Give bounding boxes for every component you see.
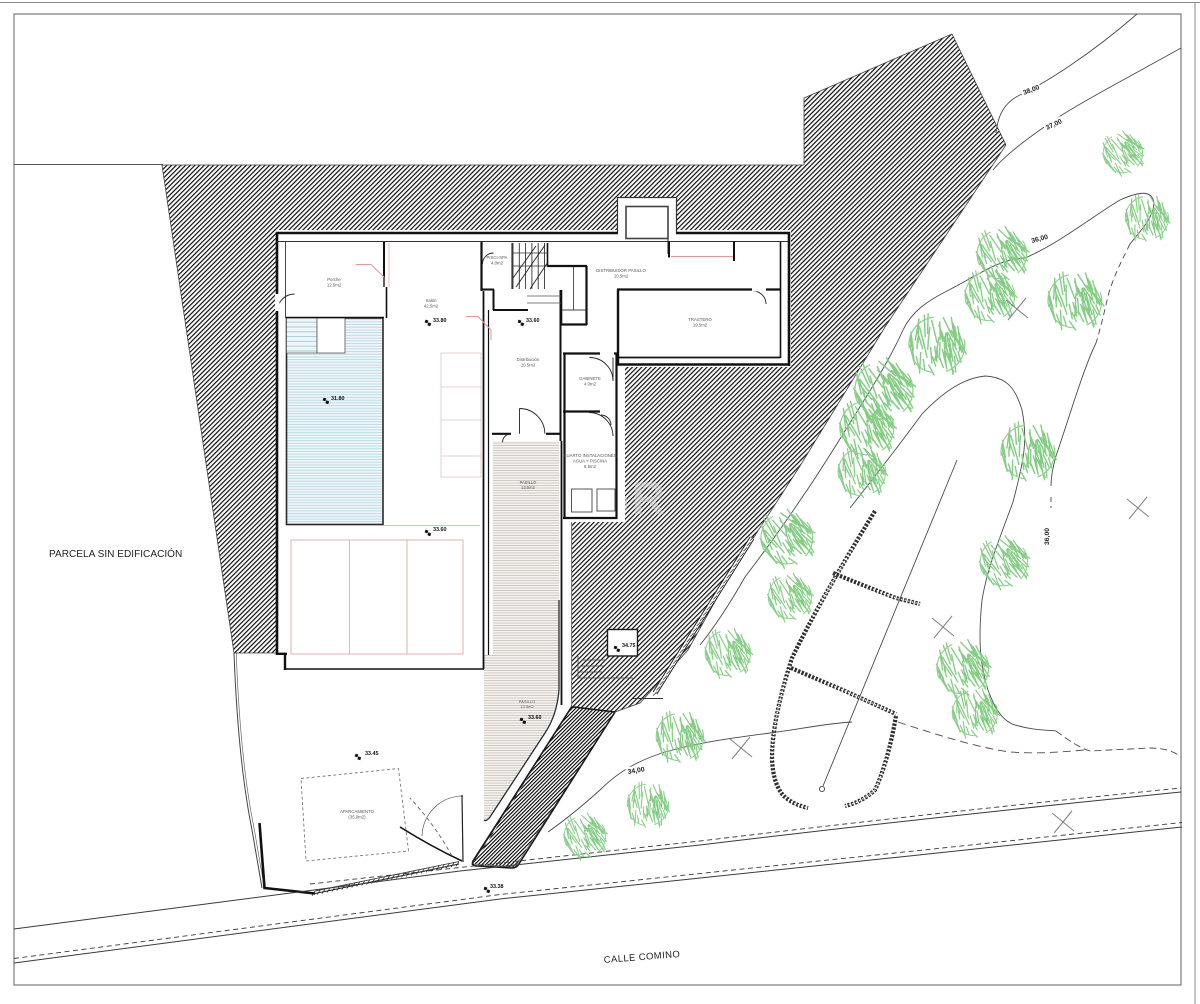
svg-text:33.60: 33.60 [433, 527, 447, 533]
svg-text:Distribución: Distribución [517, 357, 540, 362]
svg-text:33.60: 33.60 [526, 318, 540, 324]
svg-text:4.0m2: 4.0m2 [584, 381, 597, 386]
svg-text:13.5m2: 13.5m2 [521, 485, 535, 490]
svg-text:33.45: 33.45 [365, 751, 379, 757]
svg-text:CUARTO INSTALACIONES: CUARTO INSTALACIONES [563, 453, 616, 458]
svg-text:33.60: 33.60 [528, 715, 542, 721]
svg-text:PARCELA SIN EDIFICACIÓN: PARCELA SIN EDIFICACIÓN [49, 547, 182, 560]
svg-text:19.5m2: 19.5m2 [693, 322, 708, 327]
svg-text:Porche: Porche [327, 277, 341, 282]
svg-text:8.5m2: 8.5m2 [584, 464, 597, 469]
svg-text:10.5m2: 10.5m2 [521, 362, 536, 367]
svg-text:34.75: 34.75 [622, 643, 636, 649]
svg-text:4.0m2: 4.0m2 [491, 260, 504, 265]
svg-text:PISCI-SPA: PISCI-SPA [487, 255, 508, 260]
svg-text:(35.0m2): (35.0m2) [348, 814, 366, 819]
svg-text:42.5m2: 42.5m2 [424, 303, 439, 308]
svg-text:Salón: Salón [426, 298, 438, 303]
svg-text:APARCAMIENTO: APARCAMIENTO [340, 809, 375, 814]
svg-text:GABINETE: GABINETE [579, 376, 601, 381]
svg-text:36,00: 36,00 [1044, 528, 1051, 545]
svg-text:33.38: 33.38 [490, 884, 504, 890]
svg-text:DISTRIBUIDOR PASILLO: DISTRIBUIDOR PASILLO [596, 268, 646, 273]
svg-text:33.80: 33.80 [433, 318, 447, 324]
svg-text:31.80: 31.80 [331, 396, 345, 402]
svg-text:AGUA Y PISCINA: AGUA Y PISCINA [573, 458, 607, 463]
svg-text:TRASTERO: TRASTERO [688, 317, 712, 322]
svg-text:13.5m2: 13.5m2 [520, 704, 534, 709]
svg-text:10.5m2: 10.5m2 [614, 273, 629, 278]
svg-text:12.5m2: 12.5m2 [327, 282, 342, 287]
